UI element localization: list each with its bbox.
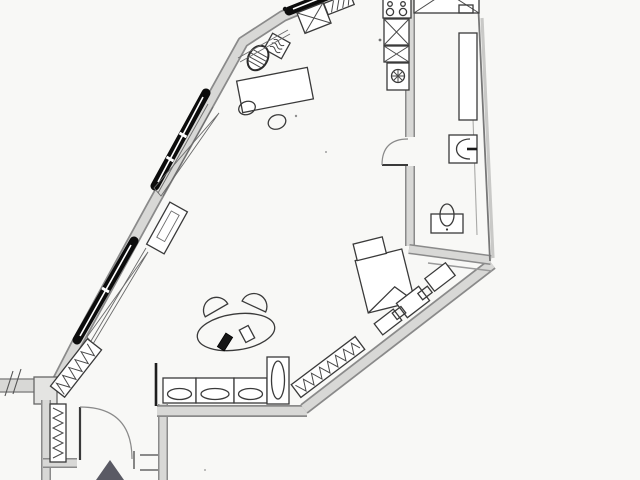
washbasin (449, 135, 477, 163)
cabinet-x-1 (384, 19, 409, 45)
stove-4-burners (383, 0, 411, 18)
wall-corner-pier (34, 377, 57, 404)
radiator-hall-vertical (50, 404, 66, 462)
extractor-fan-unit (387, 63, 409, 90)
cabinet-x-2 (384, 46, 409, 62)
floor-plan-canvas (0, 0, 640, 480)
window-hinge-dot (283, 7, 287, 11)
floor-plan-drawing (0, 0, 640, 480)
sofa-armrest (267, 357, 289, 404)
wardrobe-top (414, 0, 479, 13)
tall-counter (459, 33, 477, 120)
wall-left-stub (0, 379, 36, 392)
